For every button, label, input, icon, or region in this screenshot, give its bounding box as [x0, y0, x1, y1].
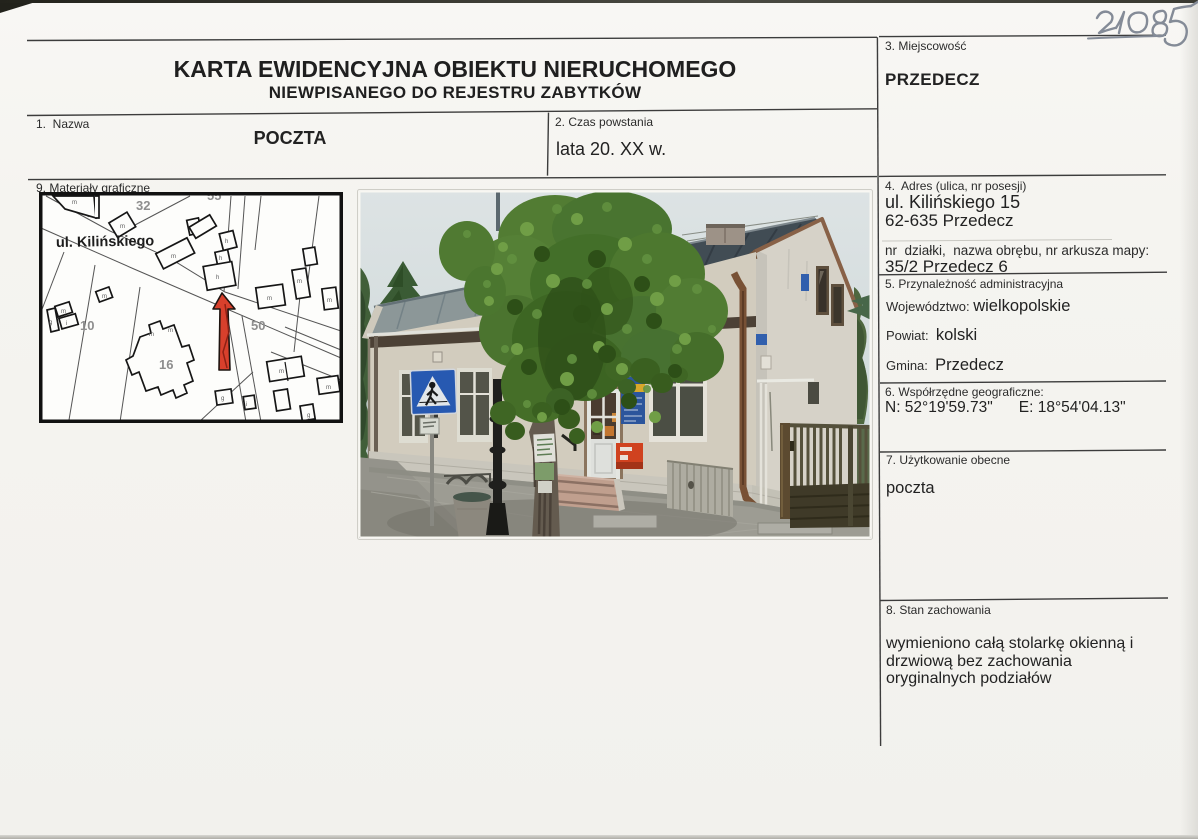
svg-text:i: i — [246, 402, 247, 408]
svg-text:50: 50 — [251, 318, 265, 333]
svg-text:m: m — [171, 254, 176, 260]
svg-text:h: h — [225, 239, 228, 245]
svg-text:ul. Kilińskiego: ul. Kilińskiego — [56, 233, 155, 251]
svg-text:m: m — [72, 200, 77, 206]
svg-text:m: m — [279, 369, 284, 375]
svg-text:m: m — [61, 309, 66, 315]
svg-text:i: i — [66, 321, 67, 327]
svg-text:m: m — [120, 224, 125, 230]
svg-text:h: h — [216, 275, 219, 281]
svg-text:m: m — [297, 279, 302, 285]
svg-text:m: m — [326, 385, 331, 391]
svg-text:10: 10 — [80, 318, 94, 333]
svg-text:m: m — [102, 294, 107, 300]
svg-text:m: m — [267, 296, 272, 302]
svg-text:h: h — [219, 256, 222, 262]
svg-text:m: m — [149, 332, 154, 338]
svg-text:g: g — [49, 320, 52, 326]
svg-text:g: g — [221, 396, 224, 402]
svg-text:m: m — [327, 298, 332, 304]
svg-text:m: m — [168, 328, 173, 334]
svg-text:32: 32 — [136, 198, 150, 213]
svg-text:16: 16 — [159, 357, 173, 372]
svg-text:g: g — [307, 413, 310, 419]
